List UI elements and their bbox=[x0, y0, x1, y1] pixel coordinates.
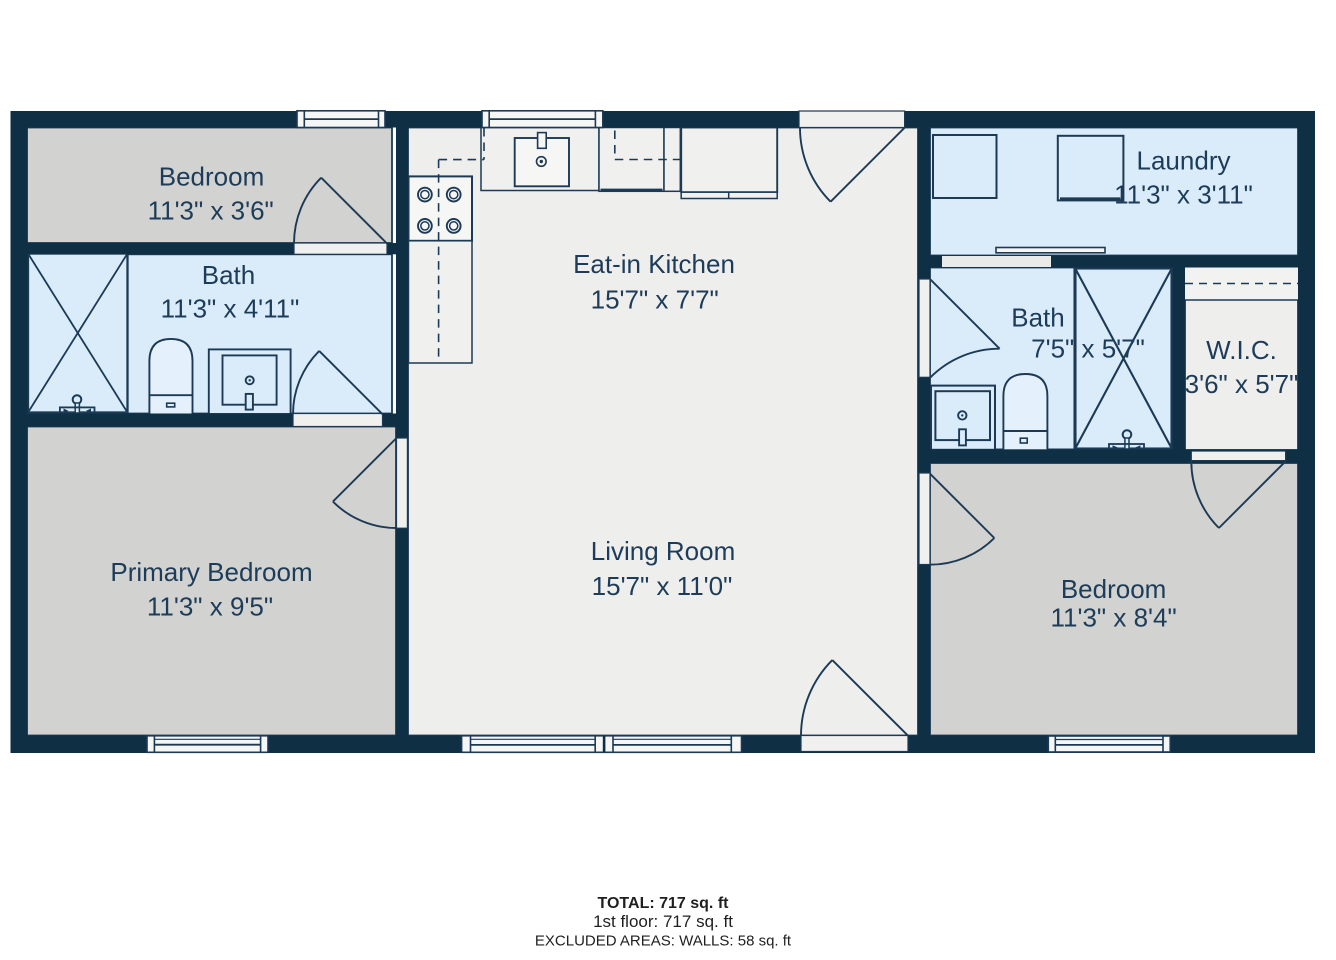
svg-text:11'3" x 8'4": 11'3" x 8'4" bbox=[1050, 603, 1176, 633]
svg-text:Bath: Bath bbox=[202, 260, 256, 290]
svg-text:W.I.C.: W.I.C. bbox=[1206, 335, 1277, 365]
svg-text:Eat-in Kitchen: Eat-in Kitchen bbox=[573, 249, 735, 279]
svg-text:EXCLUDED AREAS: WALLS: 58 sq.: EXCLUDED AREAS: WALLS: 58 sq. ft bbox=[535, 933, 792, 950]
svg-text:Bedroom: Bedroom bbox=[1061, 574, 1167, 604]
svg-text:TOTAL: 717 sq. ft: TOTAL: 717 sq. ft bbox=[598, 895, 730, 912]
svg-text:Bath: Bath bbox=[1011, 303, 1065, 333]
svg-text:7'5" x 5'7": 7'5" x 5'7" bbox=[1031, 334, 1145, 364]
svg-text:11'3" x 9'5": 11'3" x 9'5" bbox=[147, 592, 273, 622]
svg-text:15'7" x 7'7": 15'7" x 7'7" bbox=[591, 285, 719, 315]
svg-text:15'7" x 11'0": 15'7" x 11'0" bbox=[592, 571, 733, 601]
svg-text:11'3" x 3'11": 11'3" x 3'11" bbox=[1114, 179, 1253, 209]
svg-text:Primary Bedroom: Primary Bedroom bbox=[110, 557, 312, 587]
svg-text:11'3" x 4'11": 11'3" x 4'11" bbox=[161, 294, 300, 324]
svg-text:Living Room: Living Room bbox=[591, 536, 736, 566]
svg-text:11'3" x 3'6": 11'3" x 3'6" bbox=[148, 196, 274, 226]
svg-text:1st floor: 717 sq. ft: 1st floor: 717 sq. ft bbox=[593, 912, 733, 931]
svg-text:3'6" x 5'7": 3'6" x 5'7" bbox=[1185, 369, 1299, 399]
svg-text:Laundry: Laundry bbox=[1137, 146, 1231, 176]
svg-text:Bedroom: Bedroom bbox=[159, 162, 265, 192]
